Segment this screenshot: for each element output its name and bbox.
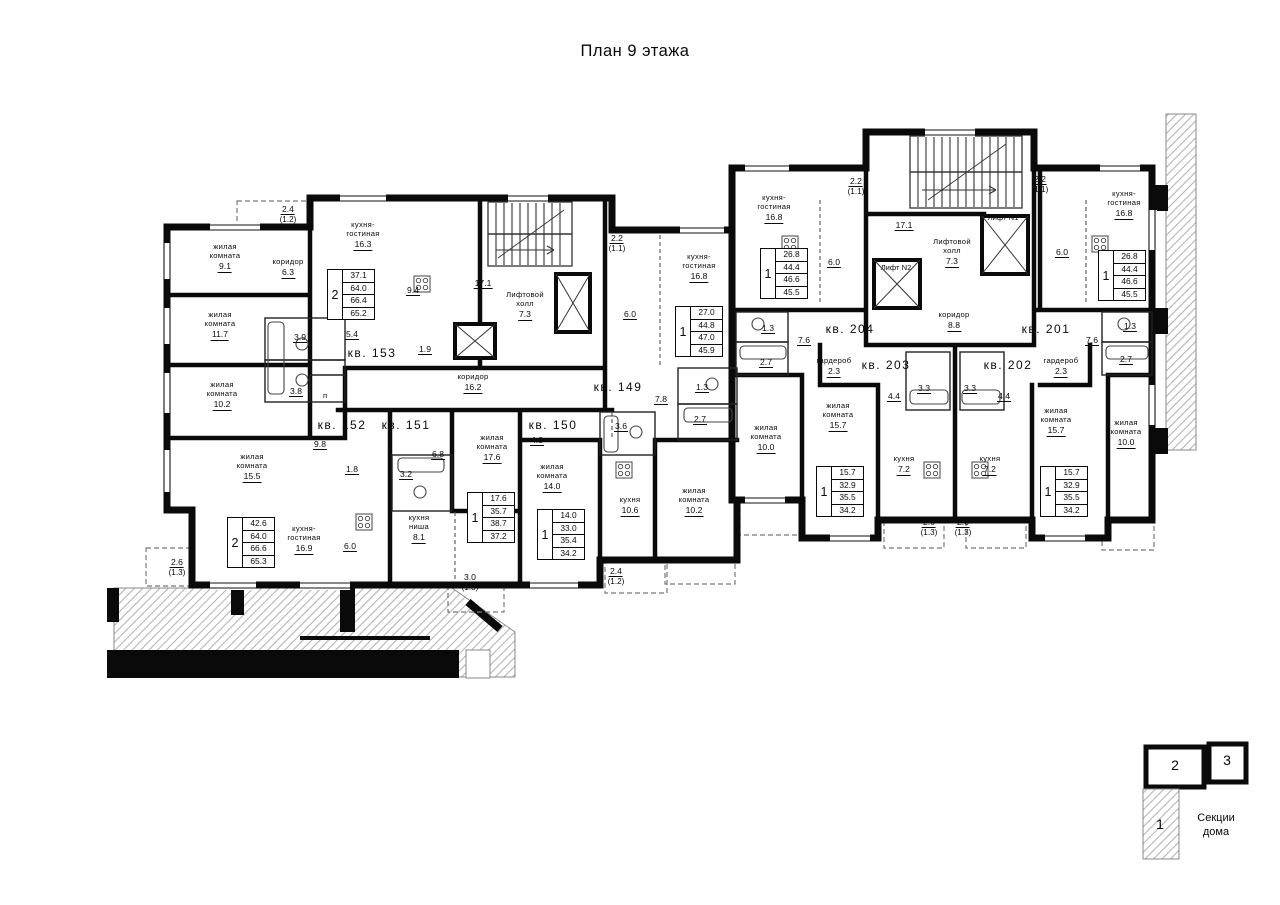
area-label: 3.8	[289, 385, 303, 397]
apartment-number-label: кв. 202	[984, 358, 1033, 372]
spec-value: 44.4	[1114, 264, 1145, 277]
apartment-spec-table: 237.164.066.465.2	[327, 269, 375, 320]
apartment-spec-table: 115.732.935.534.2	[816, 466, 864, 517]
spec-value: 35.7	[483, 506, 514, 519]
area-label: 3.3	[963, 382, 977, 394]
area-label: 2.6(1.3)	[921, 516, 938, 538]
spec-value: 66.4	[343, 295, 374, 308]
apartment-spec-table: 117.635.738.737.2	[467, 492, 515, 543]
spec-value: 34.2	[553, 548, 584, 560]
area-label: 6.0	[1055, 246, 1069, 258]
spec-value: 65.2	[343, 308, 374, 320]
room-count: 1	[817, 467, 832, 516]
area-label: 4.8	[530, 434, 544, 446]
room-label: жилаякомната15.5	[237, 453, 268, 483]
apartment-spec-table: 114.033.035.434.2	[537, 509, 585, 560]
apartment-spec-table: 242.664.066.665.3	[227, 517, 275, 568]
spec-value: 35.5	[832, 492, 863, 505]
spec-value: 64.0	[243, 531, 274, 544]
room-label: жилаякомната9.1	[210, 243, 241, 273]
spec-value: 27.0	[691, 307, 722, 320]
room-label: кухняниша8.1	[409, 514, 430, 544]
spec-value: 26.8	[1114, 251, 1145, 264]
spec-value: 65.3	[243, 556, 274, 568]
room-label: жилаякомната15.7	[823, 402, 854, 432]
legend-section-number: 2	[1171, 757, 1179, 774]
apartment-spec-table: 126.844.446.645.5	[1098, 250, 1146, 301]
spec-value: 44.4	[776, 262, 807, 275]
room-label: кухня-гостиная16.3	[346, 221, 379, 251]
area-label: 2.7	[693, 413, 707, 425]
room-label: кухня-гостиная16.8	[682, 253, 715, 283]
spec-value: 37.1	[343, 270, 374, 283]
room-label: гардероб2.3	[1044, 357, 1079, 378]
area-label: 3.6	[614, 420, 628, 432]
labels-layer: жилаякомната9.1коридор6.3кухня-гостиная1…	[0, 0, 1280, 905]
area-label: 1.3	[761, 322, 775, 334]
spec-value: 66.6	[243, 543, 274, 556]
room-label: Лифтовойхолл7.3	[933, 238, 971, 268]
apartment-spec-table: 115.732.935.534.2	[1040, 466, 1088, 517]
spec-value: 45.5	[1114, 289, 1145, 301]
room-label: жилаякомната11.7	[205, 311, 236, 341]
room-label: коридор8.8	[938, 311, 969, 332]
apartment-number-label: кв. 152	[318, 418, 367, 432]
spec-value: 14.0	[553, 510, 584, 523]
spec-value: 34.2	[1056, 505, 1087, 517]
room-label: жилаякомната15.7	[1041, 407, 1072, 437]
room-label: Лифтовойхолл7.3	[506, 291, 544, 321]
legend-section-number: 1	[1156, 816, 1164, 833]
apartment-spec-table: 127.044.847.045.9	[675, 306, 723, 357]
area-label: 3.0(1.5)	[462, 571, 479, 593]
room-label: жилаякомната14.0	[537, 463, 568, 493]
area-label: 7.6	[797, 334, 811, 346]
room-label: кухня-гостиная16.8	[757, 194, 790, 224]
area-label: 5.4	[345, 328, 359, 340]
room-label: кухня-гостиная16.9	[287, 525, 320, 555]
area-label: 9.4	[406, 284, 420, 296]
room-count: 1	[676, 307, 691, 356]
room-label: кухня10.6	[620, 496, 641, 517]
room-label: коридор16.2	[457, 373, 488, 394]
spec-value: 46.6	[1114, 276, 1145, 289]
spec-value: 42.6	[243, 518, 274, 531]
room-label: кухня7.2	[980, 455, 1001, 476]
room-label: жилаякомната10.2	[207, 381, 238, 411]
room-label: жилаякомната17.6	[477, 434, 508, 464]
room-label: коридор6.3	[272, 258, 303, 279]
area-label: 2.2(1.1)	[1032, 173, 1049, 195]
apartment-number-label: кв. 151	[382, 418, 431, 432]
area-label: 7.6	[1085, 334, 1099, 346]
spec-value: 17.6	[483, 493, 514, 506]
spec-value: 26.8	[776, 249, 807, 262]
room-label: жилаякомната10.0	[1111, 419, 1142, 449]
spec-value: 33.0	[553, 523, 584, 536]
room-count: 2	[228, 518, 243, 567]
lift-label: Лифт N2	[881, 264, 912, 273]
room-label: кухня7.2	[894, 455, 915, 476]
area-label: 6.0	[827, 256, 841, 268]
legend-section-number: 3	[1223, 752, 1231, 769]
area-label: 17.1	[895, 219, 914, 231]
apartment-number-label: кв. 153	[348, 346, 397, 360]
area-label: 2.4(1.2)	[280, 203, 297, 225]
spec-value: 32.9	[1056, 480, 1087, 493]
spec-value: 45.5	[776, 287, 807, 299]
area-label: 2.6(1.3)	[169, 556, 186, 578]
spec-value: 46.6	[776, 274, 807, 287]
spec-value: 15.7	[832, 467, 863, 480]
room-count: 1	[1099, 251, 1114, 300]
room-count: 1	[1041, 467, 1056, 516]
apartment-number-label: кв. 204	[826, 322, 875, 336]
spec-value: 37.2	[483, 531, 514, 543]
apartment-spec-table: 126.844.446.645.5	[760, 248, 808, 299]
room-label: кухня-гостиная16.8	[1107, 190, 1140, 220]
apartment-number-label: кв. 203	[862, 358, 911, 372]
area-label: 1.3	[1123, 320, 1137, 332]
lift-label: п	[323, 392, 327, 401]
lift-label: Лифт N1	[988, 214, 1019, 223]
spec-value: 35.4	[553, 535, 584, 548]
area-label: 7.8	[654, 393, 668, 405]
apartment-number-label: кв. 149	[594, 380, 643, 394]
area-label: 17.1	[474, 277, 493, 289]
spec-value: 32.9	[832, 480, 863, 493]
area-label: 6.8	[431, 448, 445, 460]
area-label: 3.3	[917, 382, 931, 394]
area-label: 2.7	[759, 356, 773, 368]
floor-plan-canvas: План 9 этажа жилаякомната9.1коридор6.3ку…	[0, 0, 1280, 905]
room-label: гардероб2.3	[817, 357, 852, 378]
area-label: 2.2(1.1)	[609, 232, 626, 254]
area-label: 2.2(1.1)	[848, 175, 865, 197]
area-label: 2.7	[1119, 353, 1133, 365]
spec-value: 64.0	[343, 283, 374, 296]
area-label: 6.0	[343, 540, 357, 552]
spec-value: 34.2	[832, 505, 863, 517]
room-label: жилаякомната10.0	[751, 424, 782, 454]
room-count: 2	[328, 270, 343, 319]
spec-value: 38.7	[483, 518, 514, 531]
spec-value: 47.0	[691, 332, 722, 345]
room-count: 1	[761, 249, 776, 298]
area-label: 1.3	[695, 381, 709, 393]
area-label: 9.8	[313, 438, 327, 450]
area-label: 6.0	[623, 308, 637, 320]
area-label: 2.4(1.2)	[608, 565, 625, 587]
room-count: 1	[468, 493, 483, 542]
room-label: жилаякомната10.2	[679, 487, 710, 517]
area-label: 1.8	[345, 463, 359, 475]
spec-value: 45.9	[691, 345, 722, 357]
spec-value: 15.7	[1056, 467, 1087, 480]
area-label: 1.9	[418, 343, 432, 355]
area-label: 2.6(1.3)	[955, 516, 972, 538]
room-count: 1	[538, 510, 553, 559]
apartment-number-label: кв. 150	[529, 418, 578, 432]
area-label: 4.4	[887, 390, 901, 402]
area-label: 3.9	[293, 331, 307, 343]
apartment-number-label: кв. 201	[1022, 322, 1071, 336]
spec-value: 35.5	[1056, 492, 1087, 505]
area-label: 3.2	[399, 468, 413, 480]
area-label: 4.4	[997, 390, 1011, 402]
spec-value: 44.8	[691, 320, 722, 333]
legend-caption: Секциидома	[1197, 812, 1234, 840]
